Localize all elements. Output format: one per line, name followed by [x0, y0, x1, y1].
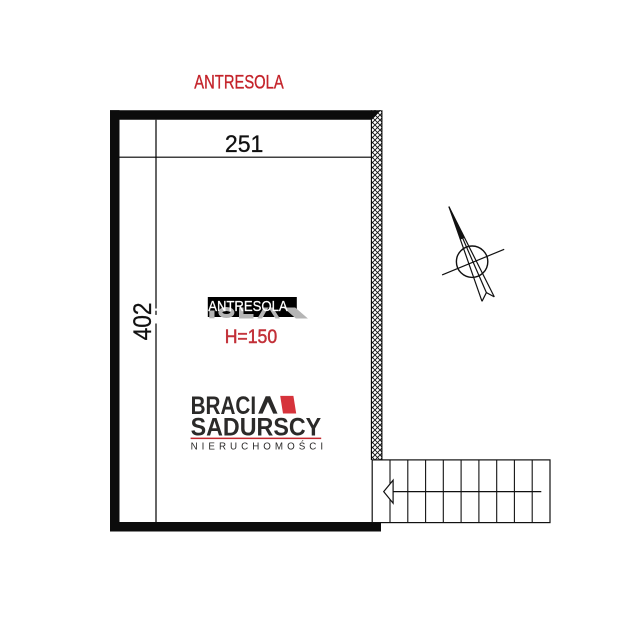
- svg-text:251: 251: [225, 131, 264, 158]
- svg-text:ANTRESOLA: ANTRESOLA: [208, 298, 288, 315]
- svg-text:ANTRESOLA: ANTRESOLA: [194, 72, 283, 94]
- svg-text:NIERUCHOMOŚCI: NIERUCHOMOŚCI: [191, 440, 324, 452]
- svg-text:402: 402: [129, 302, 157, 340]
- svg-text:H=150: H=150: [225, 326, 278, 348]
- svg-text:SADURSCY: SADURSCY: [191, 414, 322, 442]
